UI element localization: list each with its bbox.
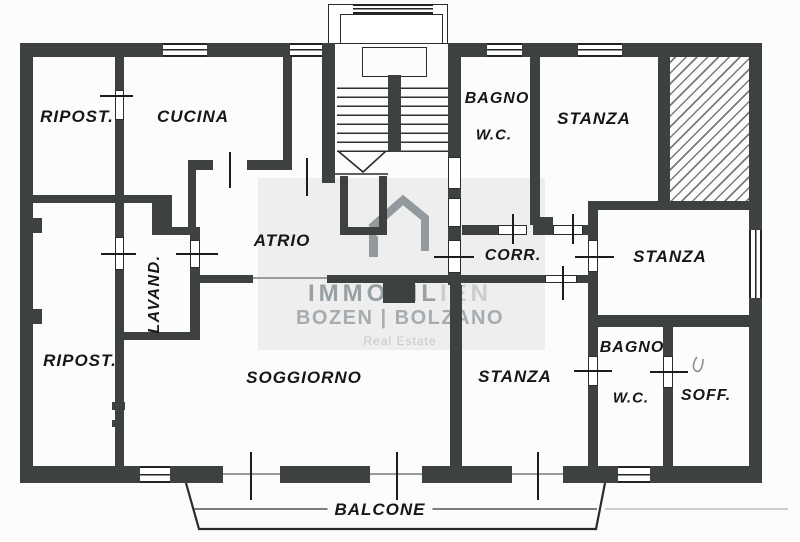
door-tick [176, 253, 218, 255]
window [487, 43, 522, 57]
wall-segment [588, 201, 762, 210]
room-label-lavanderia: LAVAND. [146, 254, 164, 333]
wall-segment [422, 466, 512, 483]
door-tick [572, 214, 574, 244]
door-tick [306, 158, 308, 196]
window [749, 230, 762, 298]
wall-segment [563, 466, 618, 483]
window [140, 466, 170, 483]
wall-segment [247, 160, 292, 170]
stair-landing-outline [340, 14, 443, 44]
window [290, 43, 322, 57]
stair-divider-wall [388, 75, 401, 152]
wall-pier [112, 420, 124, 427]
room-label-stanza-top: STANZA [557, 109, 631, 129]
hatched-area [670, 53, 749, 201]
wall-segment [379, 176, 387, 233]
wall-segment [115, 120, 124, 237]
room-label-bagno-top: BAGNO [465, 90, 530, 108]
wall-segment [188, 160, 196, 227]
door-opening [448, 198, 461, 227]
room-label-bagno-bottom-wc: W.C. [613, 390, 649, 407]
wall-segment [448, 227, 461, 240]
room-label-cucina: CUCINA [157, 107, 229, 127]
wall-segment [20, 43, 33, 483]
room-label-stanza-bottom: STANZA [478, 367, 552, 387]
room-label-corridoio: CORR. [485, 247, 542, 265]
wall-segment [588, 272, 598, 356]
wall-segment [327, 275, 545, 283]
door-opening [448, 157, 461, 189]
wall-segment [522, 43, 578, 57]
wall-pier [33, 218, 42, 233]
door-tick [229, 152, 231, 188]
wall-segment [152, 195, 172, 235]
door-tick [575, 256, 614, 258]
staircase-steps [337, 80, 388, 152]
threshold-line [253, 277, 327, 279]
wall-pier [112, 402, 125, 410]
wall-segment [448, 189, 461, 198]
door-tick [512, 214, 514, 244]
stair-winder-lines [338, 151, 386, 172]
watermark-brand-dark: IMMOBIL [308, 280, 440, 307]
wall-segment [283, 57, 292, 160]
wall-segment [280, 466, 370, 483]
wall-segment [462, 225, 498, 235]
wall-segment [658, 43, 670, 210]
wall-segment [115, 57, 124, 90]
wall-segment [340, 176, 348, 233]
watermark-tagline: Real Estate [363, 334, 436, 348]
door-tick [396, 452, 398, 500]
watermark-city: BOZEN | BOLZANO [296, 307, 504, 330]
door-tick [562, 266, 564, 300]
wall-segment [170, 466, 223, 483]
wall-segment [450, 285, 462, 466]
door-tick [650, 371, 688, 373]
door-tick [100, 95, 133, 97]
staircase-steps [401, 80, 448, 152]
door-opening [545, 275, 577, 283]
room-label-soffitta: SOFF. [681, 387, 731, 405]
door-tick [101, 253, 136, 255]
wall-segment [33, 195, 152, 203]
window [163, 43, 207, 57]
stair-landing-outline [362, 47, 427, 77]
room-label-bagno-top-wc: W.C. [476, 127, 512, 144]
room-label-atrio: ATRIO [254, 231, 311, 251]
room-label-soggiorno: SOGGIORNO [246, 368, 362, 388]
wall-segment [530, 57, 540, 225]
wall-segment [663, 327, 673, 356]
handwritten-mark [693, 357, 703, 371]
wall-segment [448, 43, 461, 157]
wall-pier [33, 309, 42, 324]
room-label-ripost-bottom: RIPOST. [43, 351, 117, 371]
wall-segment [622, 43, 762, 57]
wall-segment [663, 388, 673, 466]
wall-segment [207, 43, 290, 57]
wall-segment [588, 315, 762, 327]
door-opening [553, 225, 583, 235]
room-label-ripost-top: RIPOST. [40, 107, 114, 127]
room-label-stanza-right: STANZA [633, 247, 707, 267]
window [618, 466, 650, 483]
wall-segment [588, 386, 598, 466]
wall-segment [20, 466, 140, 483]
window [353, 4, 433, 14]
door-tick [434, 256, 474, 258]
room-label-balcone: BALCONE [327, 500, 432, 520]
wall-segment [20, 43, 163, 57]
wall-segment [322, 43, 335, 183]
wall-segment [190, 227, 200, 240]
window [578, 43, 622, 57]
door-tick [537, 452, 539, 500]
wall-segment [340, 227, 387, 235]
wall-segment [650, 466, 762, 483]
chimney-pillar [383, 281, 415, 303]
wall-segment [198, 275, 253, 283]
floorplan-canvas: IMMOBILIEN BOZEN | BOLZANO Real Estate [0, 0, 800, 542]
door-tick [250, 452, 252, 500]
wall-segment [196, 160, 213, 170]
room-label-bagno-bottom: BAGNO [600, 339, 665, 357]
door-tick [574, 370, 612, 372]
